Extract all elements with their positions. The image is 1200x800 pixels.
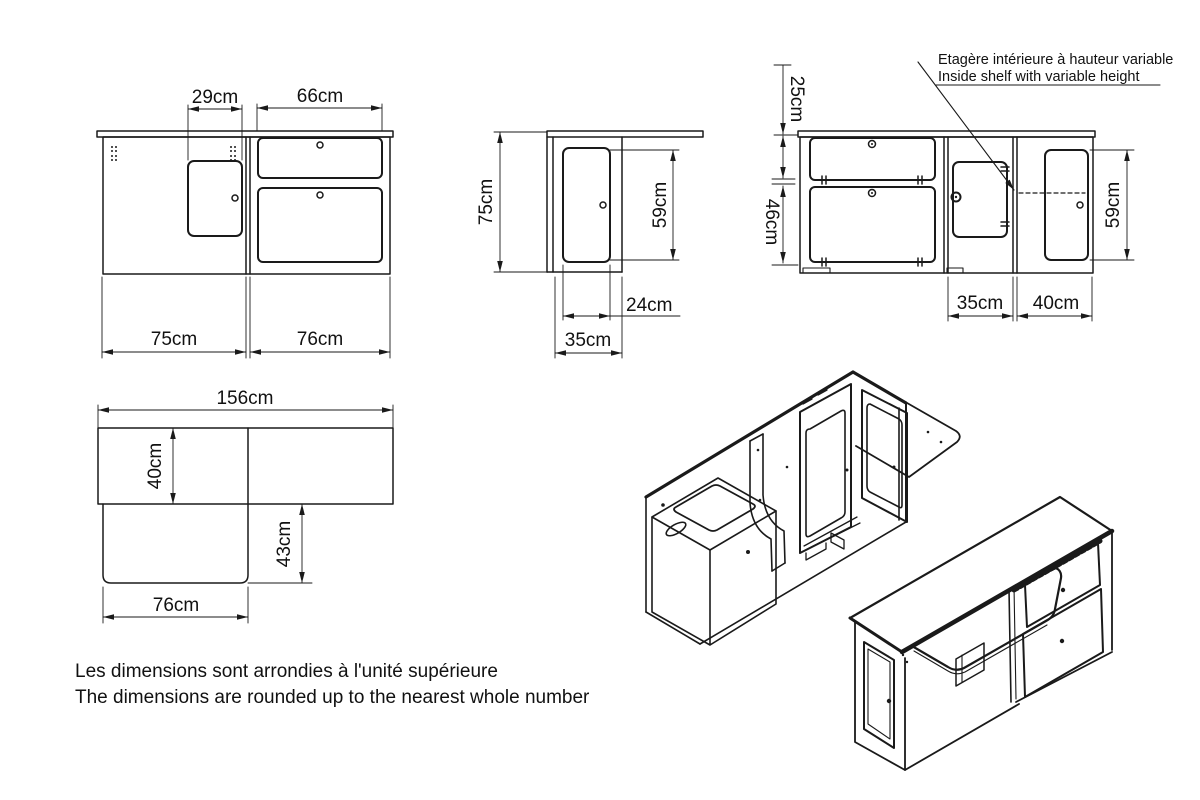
note-fr: Les dimensions sont arrondies à l'unité … <box>75 661 498 682</box>
panel-dots <box>757 449 789 502</box>
swing-out-table <box>912 568 1061 686</box>
dim-total-height: 75cm <box>476 132 547 272</box>
side-view: 75cm 59cm 24cm 35cm <box>476 131 703 358</box>
rear-right-door <box>1045 150 1088 260</box>
door-knob <box>232 195 238 201</box>
dim-label-76cm-plan: 76cm <box>153 595 199 616</box>
dim-label-75cm-height: 75cm <box>476 179 497 225</box>
note-en: The dimensions are rounded up to the nea… <box>75 687 590 708</box>
dim-depth: 35cm <box>555 277 622 358</box>
table-extension-plan <box>103 504 248 583</box>
note-block: Les dimensions sont arrondies à l'unité … <box>75 661 590 708</box>
knob <box>1060 639 1064 643</box>
dim-door-height: 59cm <box>610 150 679 260</box>
knob <box>887 699 891 703</box>
dim-label-59cm: 59cm <box>650 182 671 228</box>
dim-label-25cm: 25cm <box>786 76 807 122</box>
dim-table-depth: 43cm <box>248 504 312 583</box>
drawer-knob <box>317 192 323 198</box>
drawing-svg: 29cm 66cm 75cm 76cm <box>0 0 1200 800</box>
countertop-rear <box>798 131 1095 137</box>
dim-label-156cm: 156cm <box>216 388 273 409</box>
dim-label-24cm: 24cm <box>626 295 672 316</box>
iso-underside-view <box>646 372 960 645</box>
dim-label-29cm: 29cm <box>192 87 238 108</box>
dim-bottom-widths: 75cm 76cm <box>102 277 390 358</box>
dim-label-66cm: 66cm <box>297 86 343 107</box>
front-view: 29cm 66cm 75cm 76cm <box>97 86 393 358</box>
dim-label-40cm: 40cm <box>1033 293 1079 314</box>
dim-table-width: 76cm <box>103 587 248 623</box>
counter-plan <box>98 428 393 504</box>
fridge-box <box>652 478 776 645</box>
technical-drawing-sheet: 29cm 66cm 75cm 76cm <box>0 0 1200 800</box>
countertop-side <box>547 131 703 137</box>
drawer-knob <box>317 142 323 148</box>
iso-drawer-top <box>1025 543 1100 627</box>
rear-flap-top <box>810 138 935 184</box>
dim-drawers-width: 66cm <box>257 86 382 131</box>
cabinet-body-rear <box>800 137 1093 273</box>
door-frame-left <box>800 384 851 553</box>
dim-label-76cm: 76cm <box>297 329 343 350</box>
knob <box>1061 588 1065 592</box>
annotation-fr: Etagère intérieure à hauteur variable <box>938 52 1173 68</box>
left-door <box>188 161 242 236</box>
dim-counter-depth: 40cm <box>145 428 173 504</box>
annotation-en: Inside shelf with variable height <box>938 69 1140 85</box>
plan-view: 156cm 40cm 43cm 76cm <box>98 388 393 623</box>
knob <box>1077 202 1083 208</box>
dim-door-width: 29cm <box>188 87 242 160</box>
end-door <box>855 622 905 770</box>
counter-top-iso <box>850 497 1112 652</box>
rear-flap-bottom <box>810 187 935 266</box>
door-knob <box>600 202 606 208</box>
door-frame-right <box>862 390 907 522</box>
dim-label-59cm-right: 59cm <box>1103 182 1124 228</box>
rear-middle-door <box>952 162 1010 237</box>
dim-label-35cm: 35cm <box>565 330 611 351</box>
rear-view: Etagère intérieure à hauteur variable In… <box>761 52 1173 321</box>
drawer-bottom <box>258 188 382 262</box>
screw-dots <box>111 146 236 161</box>
side-door <box>563 148 610 262</box>
countertop <box>97 131 393 137</box>
dim-door-depth: 24cm <box>563 265 680 320</box>
dim-bottom-widths-rear: 35cm 40cm <box>948 277 1092 321</box>
dim-label-75cm: 75cm <box>151 329 197 350</box>
dim-label-46cm: 46cm <box>761 199 782 245</box>
knob <box>746 550 750 554</box>
curved-partition <box>750 434 785 571</box>
iso-front-view <box>850 497 1112 770</box>
dim-label-35cm-rear: 35cm <box>957 293 1003 314</box>
dim-label-40cm-plan: 40cm <box>145 443 166 489</box>
dim-total-width: 156cm <box>98 388 393 428</box>
dim-label-43cm: 43cm <box>274 521 295 567</box>
dim-right-door-height: 59cm <box>1090 150 1134 260</box>
drawer-top <box>258 138 382 178</box>
